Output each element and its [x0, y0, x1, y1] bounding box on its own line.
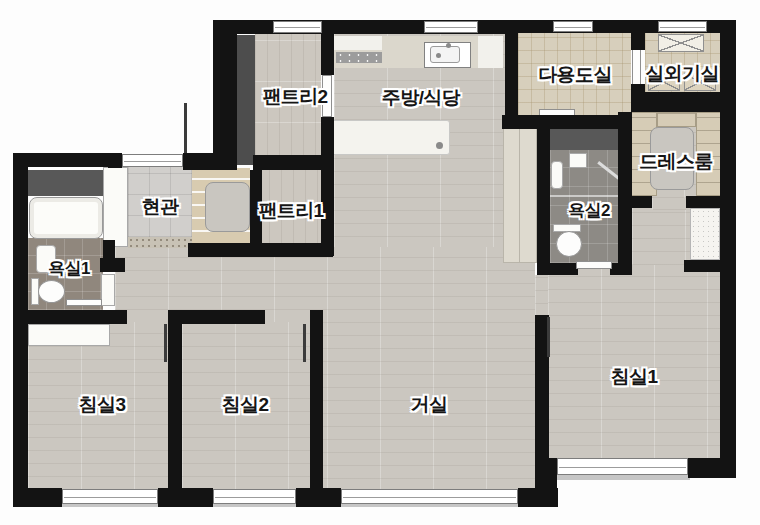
kitchen-tall-cabinet [503, 128, 537, 263]
window [341, 489, 518, 504]
window [273, 21, 322, 33]
corridor-floor [632, 207, 690, 265]
wall [631, 20, 645, 50]
window [553, 21, 593, 32]
wall [537, 263, 578, 275]
entry-wall-line [184, 103, 187, 154]
shoe-cabinet [103, 167, 128, 247]
bathroom2-sliding-door [576, 261, 612, 269]
wall [13, 153, 28, 505]
wall [537, 115, 550, 263]
bedroom1-floor [548, 263, 722, 459]
pantry2-closet [237, 35, 255, 165]
wall [103, 240, 115, 260]
room-label-bedroom2: 침실2 [222, 395, 269, 414]
cooktop-icon [336, 52, 382, 63]
bathroom1-door [66, 299, 102, 306]
wall [183, 153, 213, 170]
shower-partition [550, 195, 620, 197]
wall [321, 20, 334, 75]
wall [168, 310, 182, 505]
bedroom1-closet [690, 208, 720, 260]
room-label-entrance: 현관 [142, 197, 179, 216]
washbasin2-icon [551, 161, 563, 189]
mirror-cabinet-icon [569, 153, 587, 168]
wardrobe-top [657, 112, 696, 127]
room-label-living: 거실 [411, 395, 448, 414]
kitchen-sink-basin [430, 46, 460, 63]
room-label-utility: 다용도실 [538, 65, 612, 84]
wall [631, 196, 652, 208]
wall [684, 260, 736, 272]
kitchen-island [327, 120, 450, 155]
toilet1-icon [38, 280, 65, 303]
room-label-bathroom1: 욕실1 [48, 260, 90, 277]
front-door [122, 154, 183, 167]
room-label-pantry1: 팬트리1 [258, 201, 323, 220]
room-label-bedroom3: 침실3 [79, 395, 126, 414]
wall [686, 196, 736, 208]
wall [13, 488, 62, 507]
wall [688, 458, 736, 478]
room-label-pantry2: 팬트리2 [262, 87, 327, 106]
wall [618, 112, 632, 275]
room-label-kitchen: 주방/식당 [382, 88, 460, 107]
kitchen-counter-end [478, 36, 503, 68]
toilet2-icon [556, 231, 582, 257]
bathroom2-duct [550, 128, 620, 150]
bathtub-icon [29, 197, 103, 239]
wall [158, 488, 213, 507]
bedroom1-door-leaf [547, 317, 550, 357]
utility-outdoor-door [632, 49, 641, 86]
wall [182, 310, 265, 324]
room-label-outdoor: 실외기실 [645, 64, 719, 83]
window [62, 489, 158, 504]
wall [631, 92, 736, 112]
bedroom3-door-leaf [164, 324, 167, 362]
room-label-dressroom: 드레스룸 [639, 152, 713, 171]
bedroom3-vanity [28, 324, 110, 346]
bedroom2-door-leaf [303, 324, 306, 362]
wall [505, 20, 518, 128]
wall [188, 243, 333, 257]
outdoor-window-icon [658, 34, 704, 52]
window [557, 458, 688, 475]
dressroom-pass-floor [652, 196, 686, 210]
sink-faucet-icon [446, 43, 451, 48]
wall [518, 488, 558, 507]
wall [720, 20, 736, 478]
window [658, 21, 707, 32]
bathroom1-duct [28, 170, 103, 196]
hall-cabinet [101, 274, 115, 306]
wall [502, 115, 631, 129]
wall [321, 117, 334, 256]
wall [535, 458, 557, 489]
wall [100, 258, 125, 272]
floor-plan: 팬트리2 주방/식당 다용도실 실외기실 드레스룸 현관 팬트리1 욕실1 욕실… [0, 0, 760, 525]
kitchen-shelf [334, 36, 382, 50]
sink-drain-icon [436, 53, 441, 58]
window [213, 489, 296, 504]
room-label-bedroom1: 침실1 [611, 367, 658, 386]
wall [253, 155, 333, 170]
window [424, 21, 478, 33]
wall [310, 310, 323, 505]
entrance-step [128, 237, 192, 248]
wall [13, 310, 127, 324]
front-door-leaf [205, 182, 250, 232]
wall [108, 153, 122, 168]
wall [334, 20, 510, 34]
island-sink-icon [436, 142, 443, 149]
room-label-bathroom2: 욕실2 [568, 202, 610, 219]
wall [213, 20, 237, 170]
